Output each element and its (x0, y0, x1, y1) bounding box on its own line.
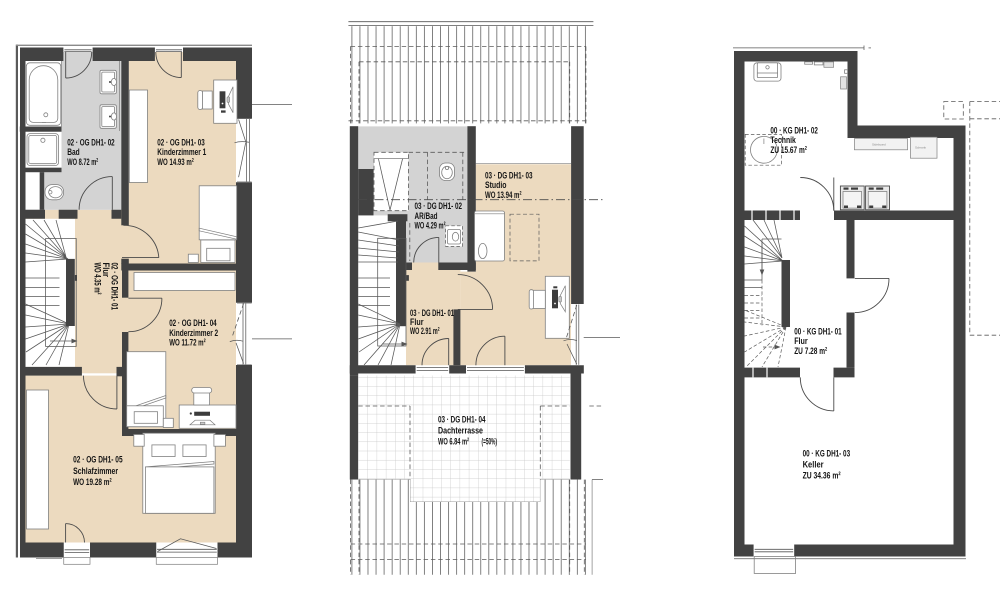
svg-text:Technik: Technik (770, 135, 796, 145)
svg-text:Sideboard: Sideboard (872, 143, 886, 147)
svg-text:ZU 7.28 m²: ZU 7.28 m² (794, 346, 827, 356)
svg-text:00 · KG DH1- 02: 00 · KG DH1- 02 (770, 126, 818, 136)
svg-text:Flur: Flur (794, 336, 808, 346)
svg-text:Keller: Keller (803, 460, 824, 470)
svg-text:WO 13.94 m²: WO 13.94 m² (485, 190, 522, 200)
svg-text:AR/Bad: AR/Bad (415, 211, 438, 221)
svg-text:00 · KG DH1- 03: 00 · KG DH1- 03 (803, 449, 851, 459)
svg-text:Schrank: Schrank (915, 146, 927, 150)
svg-text:03 · DG DH1- 03: 03 · DG DH1- 03 (485, 171, 533, 181)
svg-text:Schlafzimmer: Schlafzimmer (73, 466, 118, 476)
svg-text:WO 11.72 m²: WO 11.72 m² (169, 337, 206, 347)
svg-text:Dachterrasse: Dachterrasse (438, 426, 483, 436)
svg-text:Kinderzimmer 2: Kinderzimmer 2 (169, 328, 218, 338)
svg-text:WO 8.72 m²: WO 8.72 m² (67, 157, 98, 167)
svg-text:03 · DG DH1- 04: 03 · DG DH1- 04 (438, 415, 486, 425)
svg-text:02 · OG DH1- 05: 02 · OG DH1- 05 (73, 455, 123, 465)
svg-text:WO 4.29 m²: WO 4.29 m² (415, 220, 446, 230)
svg-text:03 · DG DH1- 02: 03 · DG DH1- 02 (415, 201, 463, 211)
svg-text:Studio: Studio (485, 180, 507, 190)
svg-text:02 · OG DH1- 02: 02 · OG DH1- 02 (67, 138, 115, 148)
svg-text:ZU 15.67 m²: ZU 15.67 m² (770, 145, 807, 155)
svg-text:WO 6.84 m²: WO 6.84 m² (438, 437, 469, 447)
svg-text:WO 19.28 m²: WO 19.28 m² (73, 477, 112, 487)
svg-text:02 · OG DH1- 03: 02 · OG DH1- 03 (157, 138, 205, 148)
svg-text:WO 4.35 m²: WO 4.35 m² (93, 263, 103, 295)
svg-text:02 · OG DH1- 04: 02 · OG DH1- 04 (169, 318, 217, 328)
svg-text:WO 14.93 m²: WO 14.93 m² (157, 157, 194, 167)
svg-text:Bad: Bad (67, 147, 80, 157)
svg-text:(=50%): (=50%) (482, 437, 498, 447)
svg-text:WO 2.91 m²: WO 2.91 m² (410, 326, 440, 336)
svg-text:Kinderzimmer 1: Kinderzimmer 1 (157, 147, 206, 157)
svg-text:ZU 34.36 m²: ZU 34.36 m² (803, 471, 841, 481)
svg-text:00 · KG DH1- 01: 00 · KG DH1- 01 (794, 327, 842, 337)
